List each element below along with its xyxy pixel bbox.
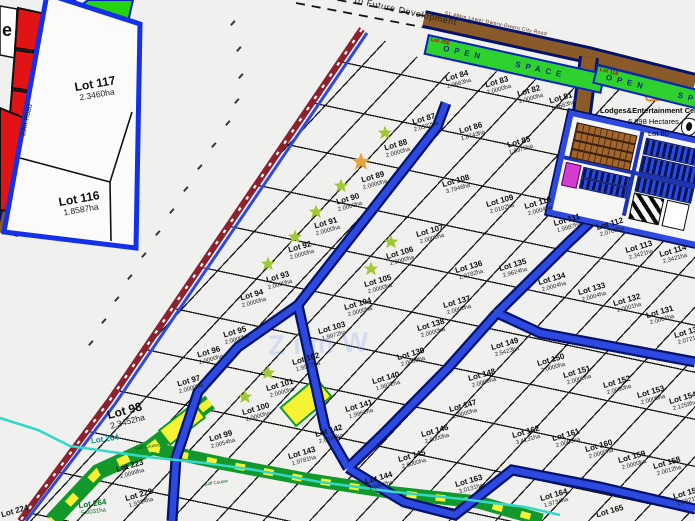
survey-beacon-tick [114,296,120,302]
lot-label: Lot 1002.0000ha [241,402,272,425]
survey-beacon-tick [183,186,189,192]
lot-label: Lot 1522.0000ha [602,375,633,398]
lot-label: Lot 1122.0702ha [596,217,627,240]
lot-label: Lot 1332.0004ha [577,282,608,305]
survey-beacon-tick [211,142,217,148]
lot-label: Lot 1312.0001ha [645,305,676,328]
lot-label: Lot 1172.3460ha [74,74,119,104]
lot-label: Lot 1633.0131ha [454,474,485,497]
lot-label: Lot 922.0000ha [287,240,315,262]
survey-beacon-tick [238,73,244,79]
lot-label: Lot 1361.9782ha [454,260,485,283]
star-icon [261,366,276,381]
lot-label: Lot 1062.0000ha [385,246,416,269]
lot-label: Lot 1042.0000ha [343,297,374,320]
lot-id: Lot 224 [0,504,29,520]
lot-label: Lot 1592.0000ha [617,450,648,473]
lot-label: Lot 1411.9962ha [344,399,375,422]
survey-beacon-tick [169,208,175,214]
lot-label: Lot 842.9663ha [444,69,472,91]
lot-label: Lot 1392.0000ha [396,347,427,370]
survey-beacon-tick [101,318,107,324]
lot-label: Lot 992.0054ha [208,429,236,451]
lot-label: Lot 902.0000ha [335,192,363,214]
lot-label: Lot 811.9663ha [548,91,576,113]
lot-label: Lot 2221.9334ha [124,488,155,511]
survey-beacon-tick [197,164,203,170]
star-icon [261,257,276,272]
lot-label: Lot 1401.9972ha [371,371,402,394]
lot-id: Lot 264 [91,434,120,447]
survey-beacon-tick [230,20,236,26]
lot-label: Lot 1102.0004ha [524,196,555,219]
star-icon [309,205,324,220]
lot-label: Lot 165 [595,504,624,520]
survey-beacon-tick [141,252,147,258]
lot-label: Lot 882.0000ha [383,138,411,160]
lot-label: Lot 2645.6031ha [78,498,108,517]
survey-beacon-tick [236,46,242,52]
lot-label: Lot 972.0000ha [176,374,204,396]
lot-label: Lot 1083.7946ha [441,174,472,197]
lot-label: Lot 872.0332ha [411,112,439,134]
lot-label: Lot 1072.0000ha [415,224,446,247]
lot-label: Lot 1322.0001ha [612,293,643,316]
lot-label: Lot 1161.8587ha [58,189,103,219]
lot-label: Lot 1092.0102ha [485,194,516,217]
lot-label: Lot 1641.9734ha [539,488,570,511]
lot-label: Lot 1372.0000ha [442,295,473,318]
star-icon [378,126,393,141]
lot-label: Lot 1582.0012ha [652,456,683,479]
lot-label: Lot 1382.0000ha [416,318,447,341]
lot-label: Lot 932.0000ha [265,270,293,292]
lot-label: Lot 1492.5423ha [490,337,521,360]
lot-label: Lot 1342.0004ha [537,272,568,295]
lot-label: Lot 1612.0003ha [551,428,582,451]
lot-label: Lot 1142.3421ha [659,244,690,267]
lot-label: Lot 912.0000ha [313,216,341,238]
lot-label: Lot 224 [0,504,29,520]
star-icon [334,179,349,194]
star-icon [384,235,399,250]
lot-label: Lot 1352.9624ha [498,258,529,281]
star-icon [364,262,379,277]
lot-label: Lot 1422.0826ha [314,424,345,447]
lot-labels-layer: Lot 1172.3460haLot 1161.8587haLot 842.96… [0,0,695,521]
lot-id: Lot 165 [595,504,624,520]
lot-label: Lot 892.0000ha [360,170,388,192]
lot-label: Lot 1542.1258ha [668,391,695,414]
lot-label: Lot 2232.0099ha [115,459,146,482]
lot-label: Lot 1602.0000ha [584,439,615,462]
survey-beacon-tick [234,98,240,104]
lot-label: Lot 861.8743ha [458,121,486,143]
survey-beacon-tick [225,120,231,126]
survey-beacon-tick [127,274,133,280]
lot-label: Lot 1482.0000ha [467,368,498,391]
lot-label: Lot 982.3452ha [106,400,146,431]
lot-label: Lot 1571.9921ha [672,486,695,509]
lot-label: Lot 1302.0721ha [673,325,695,348]
lot-label: Lot 822.0000ha [516,84,544,106]
lot-label: Lot 832.0000ha [484,75,512,97]
lot-label: Lot 1441.9842ha [364,471,395,494]
lot-label: Lot 1452.0000ha [397,449,428,472]
lot-label: Lot 264 [91,434,120,447]
star-icon [352,153,371,172]
watermark: ZimW [267,326,376,362]
lot-label: Lot 1052.0000ha [363,274,394,297]
survey-beacon-tick [88,340,94,346]
lot-label: Lot 1462.0000ha [420,424,451,447]
lot-label: Lot 1132.3421ha [625,240,656,263]
lot-label: Lot 1532.0000ha [636,385,667,408]
lot-label: Lot 1472.0000ha [448,399,479,422]
lot-label: Lot 1623.4131ha [511,425,542,448]
star-icon [238,390,253,405]
lot-label: Lot 851.8975ha [506,135,534,157]
lot-label: Lot 952.0000ha [222,325,250,347]
lot-label: Lot 962.0000ha [196,345,224,367]
subdivision-map: To Future Development 51.49km Lower Gwer… [0,0,695,521]
lot-label: Lot 1431.9781ha [287,446,318,469]
survey-beacon-tick [155,230,161,236]
lot-label: Lot 1012.0000ha [265,378,296,401]
lot-label: Lot 942.0000ha [239,288,267,310]
lot-label: Lot 1111.9987ha [553,213,583,236]
lot-label: Lot 1512.0000ha [562,365,593,388]
